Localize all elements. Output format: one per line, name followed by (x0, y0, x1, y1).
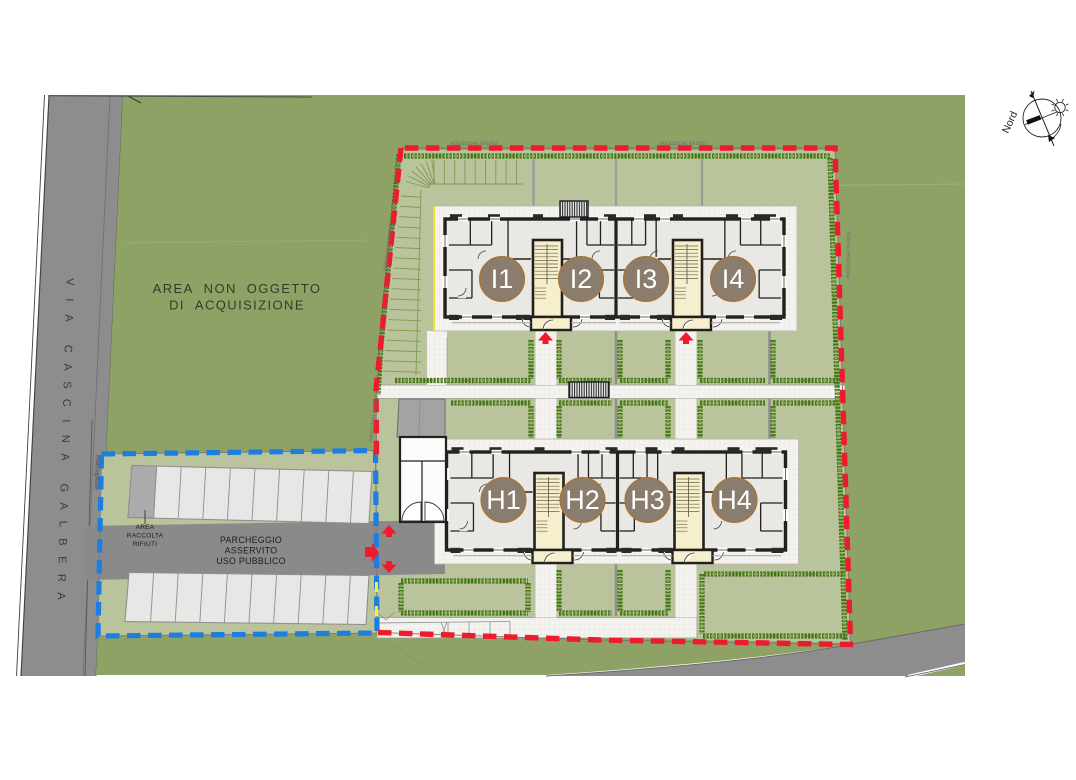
svg-text:I1: I1 (491, 264, 514, 294)
svg-text:B: B (56, 538, 68, 546)
svg-text:E: E (56, 556, 68, 564)
svg-text:nuova recinzione: nuova recinzione (844, 232, 852, 279)
svg-text:I2: I2 (570, 264, 593, 294)
svg-text:ASSERVITO: ASSERVITO (225, 546, 278, 556)
svg-text:A: A (61, 363, 73, 371)
svg-text:A: A (55, 592, 67, 600)
svg-text:H4: H4 (717, 485, 752, 515)
svg-text:H3: H3 (630, 485, 665, 515)
svg-text:marciapiede: marciapiede (93, 455, 101, 490)
svg-text:RIFIUTI: RIFIUTI (133, 541, 157, 548)
svg-text:nuova recinzione: nuova recinzione (450, 140, 497, 147)
svg-text:RACCOLTA: RACCOLTA (127, 533, 164, 540)
svg-text:I4: I4 (722, 264, 745, 294)
svg-text:R: R (55, 574, 67, 582)
svg-text:S: S (60, 381, 72, 389)
svg-text:L: L (57, 521, 69, 528)
svg-text:AREA: AREA (136, 524, 155, 531)
svg-text:DI ACQUISIZIONE: DI ACQUISIZIONE (169, 298, 305, 313)
svg-text:G: G (58, 483, 70, 492)
svg-text:AREA NON OGGETTO: AREA NON OGGETTO (153, 281, 322, 296)
svg-text:USO PUBBLICO: USO PUBBLICO (216, 556, 286, 566)
svg-text:C: C (60, 399, 72, 407)
svg-text:N: N (59, 435, 71, 443)
svg-text:H1: H1 (486, 485, 521, 515)
svg-text:A: A (62, 314, 74, 322)
svg-text:C: C (61, 345, 73, 353)
svg-text:V: V (63, 278, 75, 286)
svg-text:I: I (60, 419, 72, 422)
svg-text:A: A (58, 453, 70, 461)
svg-text:A: A (57, 502, 69, 510)
svg-text:nuova recinzione: nuova recinzione (659, 140, 706, 147)
svg-text:I3: I3 (635, 264, 658, 294)
svg-text:I: I (63, 298, 75, 301)
svg-text:PARCHEGGIO: PARCHEGGIO (220, 535, 282, 545)
svg-text:H2: H2 (565, 485, 600, 515)
